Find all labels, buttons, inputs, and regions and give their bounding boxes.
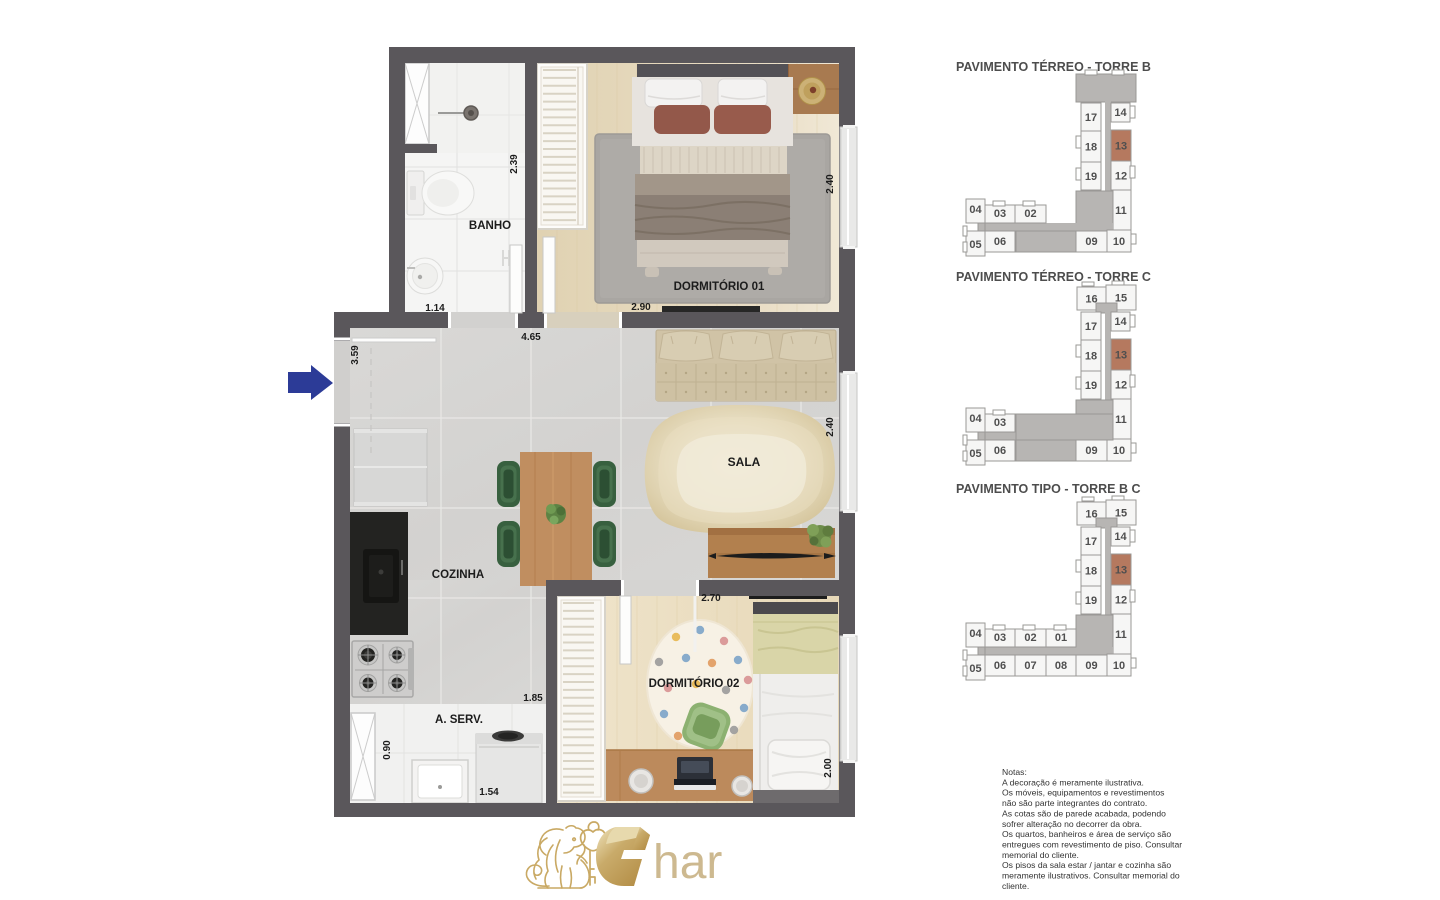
svg-text:06: 06 <box>994 236 1006 248</box>
svg-text:05: 05 <box>969 663 981 675</box>
svg-text:SALA: SALA <box>728 455 761 469</box>
svg-text:A decoração é meramente ilustr: A decoração é meramente ilustrativa. <box>1002 777 1144 787</box>
svg-text:entregues com revestimento de: entregues com revestimento de piso. Cons… <box>1002 839 1182 849</box>
svg-text:17: 17 <box>1085 321 1097 333</box>
svg-text:02: 02 <box>1024 208 1036 220</box>
svg-text:1.14: 1.14 <box>425 303 445 314</box>
svg-text:12: 12 <box>1115 380 1127 392</box>
svg-text:07: 07 <box>1024 660 1036 672</box>
svg-text:meramente ilustrativos. Consul: meramente ilustrativos. Consultar memori… <box>1002 871 1180 881</box>
svg-text:18: 18 <box>1085 142 1097 154</box>
svg-text:04: 04 <box>969 204 982 216</box>
svg-text:2.40: 2.40 <box>825 417 836 437</box>
svg-text:12: 12 <box>1115 595 1127 607</box>
svg-text:Os quartos, banheiros e área d: Os quartos, banheiros e área de serviço … <box>1002 829 1171 839</box>
svg-text:03: 03 <box>994 417 1006 429</box>
svg-text:PAVIMENTO TIPO - TORRE B C: PAVIMENTO TIPO - TORRE B C <box>956 482 1141 496</box>
svg-text:13: 13 <box>1115 565 1127 577</box>
svg-text:DORMITÓRIO 01: DORMITÓRIO 01 <box>674 280 765 293</box>
svg-text:11: 11 <box>1115 205 1127 217</box>
svg-text:10: 10 <box>1113 445 1125 457</box>
svg-text:03: 03 <box>994 632 1006 644</box>
svg-text:4.65: 4.65 <box>521 332 541 343</box>
svg-text:2.00: 2.00 <box>823 758 834 778</box>
svg-text:18: 18 <box>1085 351 1097 363</box>
svg-text:Notas:: Notas: <box>1002 767 1027 777</box>
svg-text:08: 08 <box>1055 660 1067 672</box>
svg-text:não são parte integrantes do c: não são parte integrantes do contrato. <box>1002 798 1147 808</box>
svg-text:A. SERV.: A. SERV. <box>435 714 483 726</box>
svg-text:11: 11 <box>1115 629 1127 641</box>
svg-text:14: 14 <box>1114 531 1127 543</box>
svg-text:As cotas são de parede acabada: As cotas são de parede acabada, podendo <box>1002 808 1166 818</box>
svg-text:cliente.: cliente. <box>1002 881 1029 891</box>
svg-text:12: 12 <box>1115 171 1127 183</box>
svg-text:BANHO: BANHO <box>469 220 511 232</box>
svg-text:19: 19 <box>1085 595 1097 607</box>
svg-text:19: 19 <box>1085 380 1097 392</box>
svg-text:COZINHA: COZINHA <box>432 569 484 581</box>
svg-text:05: 05 <box>969 239 981 251</box>
svg-text:04: 04 <box>969 628 982 640</box>
svg-text:DORMITÓRIO 02: DORMITÓRIO 02 <box>649 677 740 690</box>
svg-text:3.59: 3.59 <box>350 345 361 365</box>
svg-text:02: 02 <box>1024 632 1036 644</box>
svg-text:09: 09 <box>1085 236 1097 248</box>
svg-text:Os pisos da sala estar / janta: Os pisos da sala estar / jantar e cozinh… <box>1002 860 1171 870</box>
svg-text:13: 13 <box>1115 350 1127 362</box>
svg-text:11: 11 <box>1115 414 1127 426</box>
svg-text:04: 04 <box>969 413 982 425</box>
svg-text:2.39: 2.39 <box>509 154 520 174</box>
svg-text:1.85: 1.85 <box>523 693 543 704</box>
svg-text:10: 10 <box>1113 660 1125 672</box>
svg-text:13: 13 <box>1115 141 1127 153</box>
svg-text:10: 10 <box>1113 236 1125 248</box>
svg-text:0.90: 0.90 <box>382 740 393 760</box>
svg-text:09: 09 <box>1085 445 1097 457</box>
svg-text:03: 03 <box>994 208 1006 220</box>
svg-text:17: 17 <box>1085 536 1097 548</box>
svg-text:14: 14 <box>1114 107 1127 119</box>
svg-text:18: 18 <box>1085 566 1097 578</box>
svg-text:sofrer alteração no decorrer d: sofrer alteração no decorrer da obra. <box>1002 819 1142 829</box>
svg-text:2.70: 2.70 <box>701 593 721 604</box>
svg-text:06: 06 <box>994 445 1006 457</box>
svg-text:09: 09 <box>1085 660 1097 672</box>
svg-text:memorial do cliente.: memorial do cliente. <box>1002 850 1079 860</box>
svg-text:2.40: 2.40 <box>825 174 836 194</box>
svg-text:17: 17 <box>1085 112 1097 124</box>
svg-text:14: 14 <box>1114 316 1127 328</box>
svg-text:19: 19 <box>1085 171 1097 183</box>
svg-text:har: har <box>653 836 722 889</box>
svg-text:06: 06 <box>994 660 1006 672</box>
svg-text:2.90: 2.90 <box>631 302 651 313</box>
svg-text:Os móveis, equipamentos e reve: Os móveis, equipamentos e revestimentos <box>1002 788 1164 798</box>
svg-text:01: 01 <box>1055 632 1067 644</box>
svg-text:05: 05 <box>969 448 981 460</box>
svg-text:1.54: 1.54 <box>479 787 499 798</box>
